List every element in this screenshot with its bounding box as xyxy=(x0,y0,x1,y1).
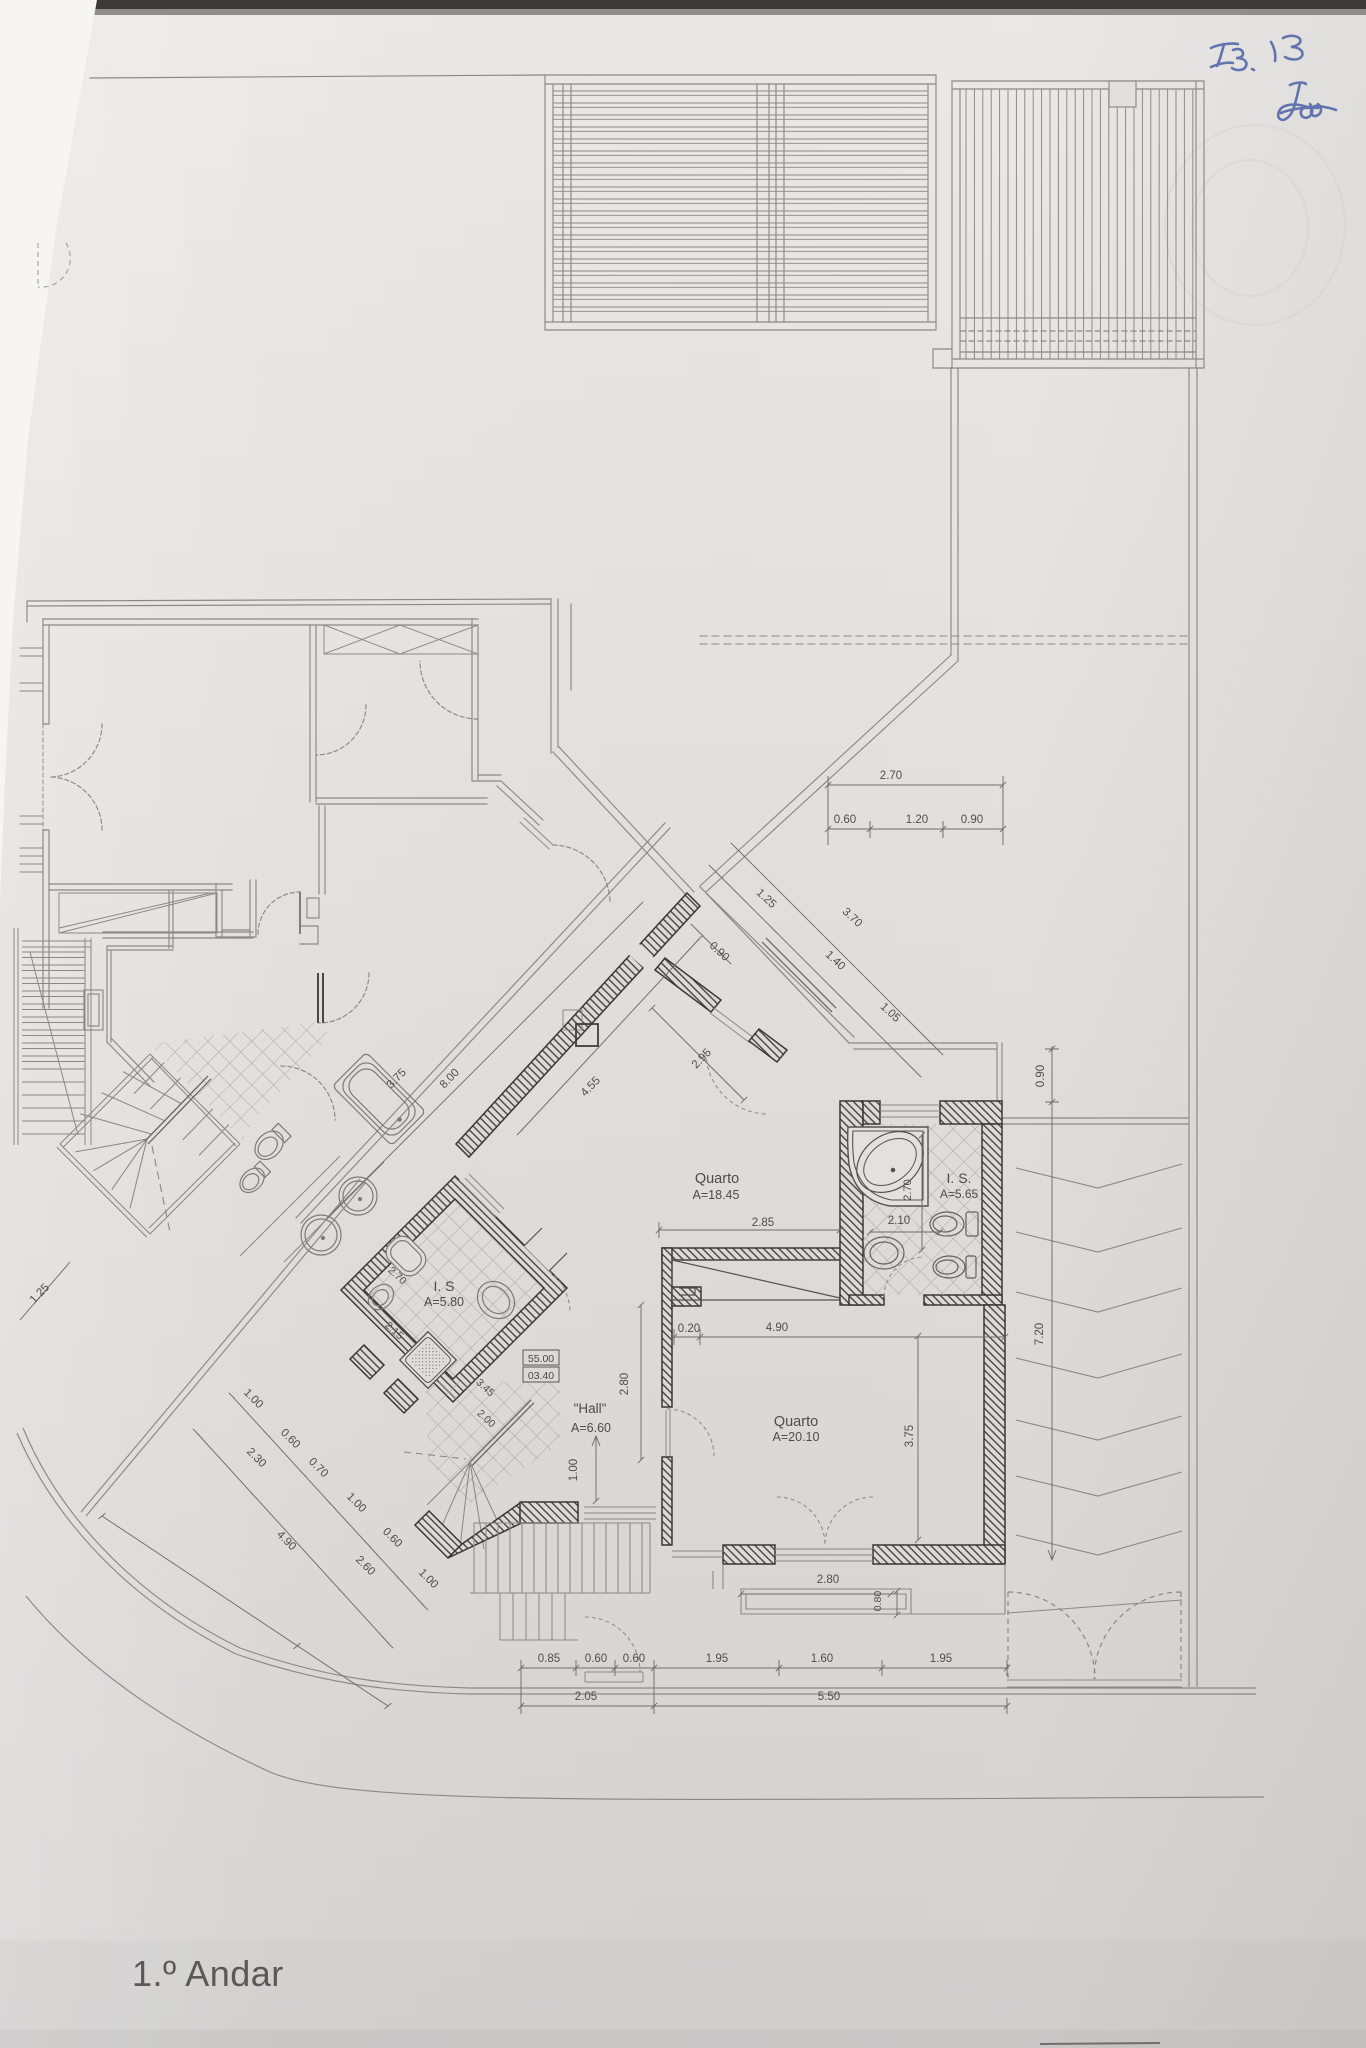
svg-text:03.40: 03.40 xyxy=(528,1370,554,1382)
svg-text:1.20: 1.20 xyxy=(906,814,928,826)
svg-text:1.00: 1.00 xyxy=(568,1459,580,1481)
svg-text:2.70: 2.70 xyxy=(902,1179,914,1200)
svg-text:1.95: 1.95 xyxy=(930,1653,952,1665)
svg-text:0.80: 0.80 xyxy=(872,1591,884,1612)
svg-text:"Hall": "Hall" xyxy=(574,1401,607,1416)
svg-text:A=5.65: A=5.65 xyxy=(940,1187,979,1201)
svg-text:4.90: 4.90 xyxy=(766,1322,788,1334)
svg-text:A=6.60: A=6.60 xyxy=(571,1421,611,1435)
svg-text:2.85: 2.85 xyxy=(752,1217,774,1229)
svg-text:Quarto: Quarto xyxy=(695,1171,739,1187)
svg-text:2.70: 2.70 xyxy=(880,770,902,782)
svg-text:A=5.80: A=5.80 xyxy=(424,1295,464,1309)
svg-text:0.90: 0.90 xyxy=(961,814,983,826)
svg-text:0.90: 0.90 xyxy=(1035,1065,1047,1087)
svg-text:55.00: 55.00 xyxy=(528,1353,554,1365)
svg-text:0.20: 0.20 xyxy=(678,1323,700,1335)
svg-text:7.20: 7.20 xyxy=(1034,1323,1046,1345)
svg-text:2.80: 2.80 xyxy=(619,1373,631,1395)
svg-text:2.80: 2.80 xyxy=(817,1574,839,1586)
svg-text:1.95: 1.95 xyxy=(706,1653,728,1665)
svg-text:A=20.10: A=20.10 xyxy=(773,1430,820,1444)
svg-text:A=18.45: A=18.45 xyxy=(693,1188,740,1202)
svg-text:2.10: 2.10 xyxy=(888,1215,910,1227)
svg-text:2.05: 2.05 xyxy=(575,1691,597,1703)
svg-text:1.60: 1.60 xyxy=(811,1653,833,1665)
svg-text:Quarto: Quarto xyxy=(774,1414,818,1430)
svg-text:I. S: I. S xyxy=(433,1278,454,1294)
svg-text:0.60: 0.60 xyxy=(623,1653,645,1665)
svg-text:5.50: 5.50 xyxy=(818,1691,840,1703)
svg-text:0.60: 0.60 xyxy=(834,814,856,826)
svg-text:1.º Andar: 1.º Andar xyxy=(132,1953,284,1994)
svg-text:0.85: 0.85 xyxy=(538,1653,560,1665)
svg-text:0.60: 0.60 xyxy=(585,1653,607,1665)
svg-text:I. S.: I. S. xyxy=(947,1170,972,1186)
svg-text:3.75: 3.75 xyxy=(904,1425,916,1447)
